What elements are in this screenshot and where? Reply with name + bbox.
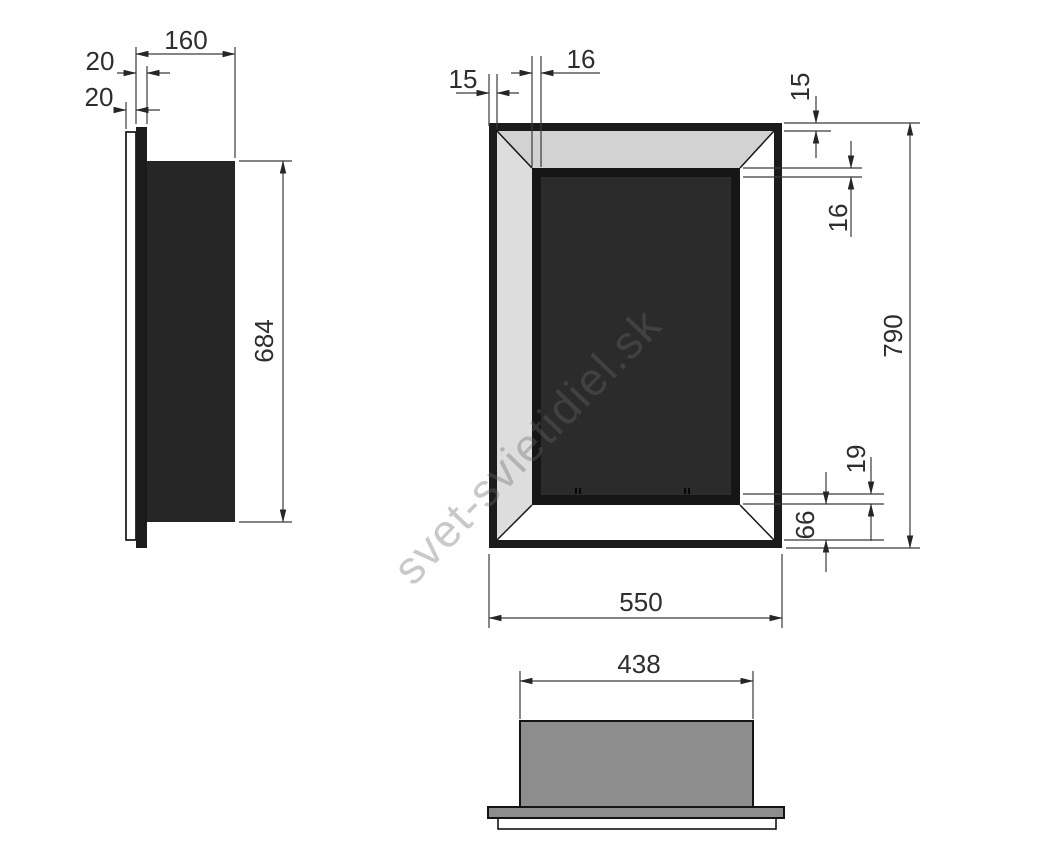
side-body [147, 161, 235, 522]
side-view: 160 20 20 684 [85, 25, 292, 548]
dim-label-bottom-inset: 66 [790, 511, 820, 540]
front-bevel-top [497, 131, 774, 168]
dim-label-front-height: 790 [878, 314, 908, 357]
bottom-view: 438 [488, 649, 784, 829]
dim-label-side-height: 684 [249, 319, 279, 362]
technical-drawing-page: 160 20 20 684 [0, 0, 1049, 866]
dim-label-frame-top: 15 [785, 73, 815, 102]
front-view: 15 16 15 16 19 66 790 550 [449, 44, 920, 628]
bottom-body [520, 721, 753, 808]
dim-label-frame-left: 15 [449, 64, 478, 94]
dim-label-lip-bottom: 19 [841, 445, 871, 474]
dim-label-wall-plate: 20 [85, 82, 114, 112]
dim-label-lip-right: 16 [823, 204, 853, 233]
side-wall-plate [126, 132, 136, 540]
dim-label-front-plate: 20 [86, 46, 115, 76]
dim-label-front-width: 550 [619, 587, 662, 617]
drawing-canvas: 160 20 20 684 [0, 0, 1049, 866]
bottom-base-bar [488, 807, 784, 818]
dim-label-side-depth: 160 [164, 25, 207, 55]
side-front-plate [136, 127, 147, 548]
dim-label-bottom-width: 438 [617, 649, 660, 679]
dim-label-lip-top: 16 [567, 44, 596, 74]
